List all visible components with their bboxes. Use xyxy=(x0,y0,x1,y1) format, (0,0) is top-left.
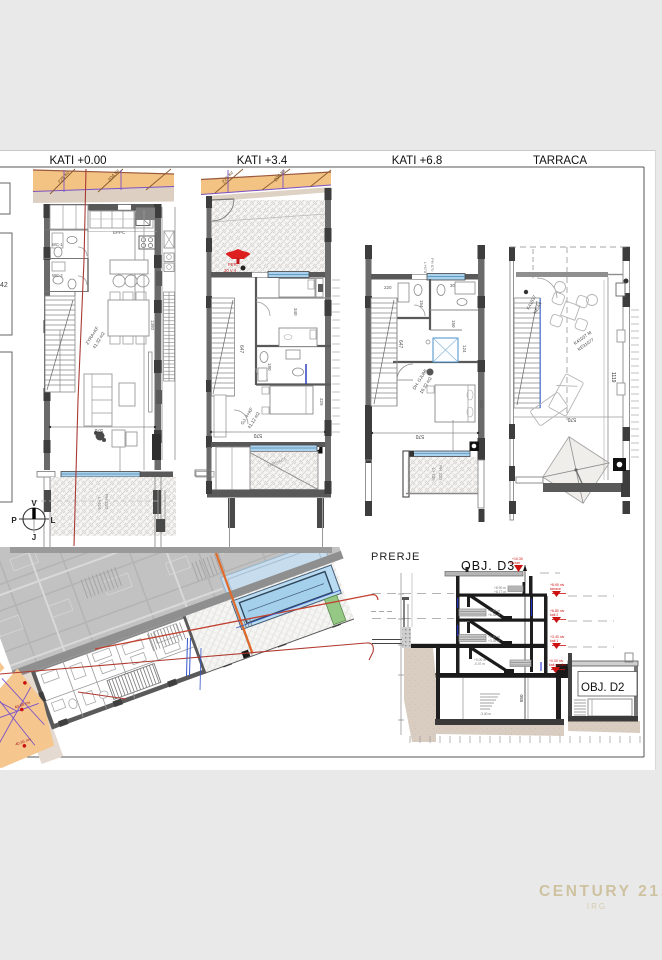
svg-text:1380: 1380 xyxy=(150,320,155,331)
svg-text:kati 1: kati 1 xyxy=(550,639,558,643)
svg-text:PER.: PER. xyxy=(228,262,238,267)
svg-text:470: 470 xyxy=(479,400,484,408)
svg-text:647: 647 xyxy=(238,345,244,354)
svg-text:CENTURY 21.: CENTURY 21. xyxy=(539,883,662,900)
svg-text:+8.77 m: +8.77 m xyxy=(494,590,506,594)
svg-text:PH 220: PH 220 xyxy=(438,465,443,481)
svg-text:220: 220 xyxy=(384,285,392,290)
svg-text:P: P xyxy=(11,516,17,525)
svg-text:KATI +0.00: KATI +0.00 xyxy=(49,155,106,167)
svg-text:154: 154 xyxy=(419,300,424,308)
svg-text:kati perdhe: kati perdhe xyxy=(549,663,566,667)
svg-text:L+678: L+678 xyxy=(423,262,428,274)
svg-text:V: V xyxy=(31,499,37,508)
svg-text:-0.07 m: -0.07 m xyxy=(474,662,485,666)
svg-text:150: 150 xyxy=(451,320,456,328)
svg-text:kati 2: kati 2 xyxy=(550,613,558,617)
svg-text:WC-1: WC-1 xyxy=(52,242,63,247)
svg-text:570: 570 xyxy=(253,432,262,438)
svg-text:OBJ. D3: OBJ. D3 xyxy=(461,559,515,573)
svg-text:647: 647 xyxy=(397,340,403,349)
svg-text:PH 670: PH 670 xyxy=(430,258,435,272)
svg-text:niv.tarr: niv.tarr xyxy=(510,561,521,565)
svg-text:570: 570 xyxy=(94,427,103,433)
svg-text:WC-2: WC-2 xyxy=(52,273,63,278)
svg-text:PH 220: PH 220 xyxy=(104,494,109,510)
svg-text:1119: 1119 xyxy=(610,372,616,383)
svg-text:340: 340 xyxy=(293,308,298,316)
svg-text:EPPC: EPPC xyxy=(113,230,126,235)
svg-text:L+416: L+416 xyxy=(97,497,102,510)
svg-text:570: 570 xyxy=(567,416,576,422)
svg-text:KATI +3.4: KATI +3.4 xyxy=(237,155,288,167)
svg-text:+6.38 m: +6.38 m xyxy=(488,613,500,617)
svg-text:42: 42 xyxy=(0,282,8,289)
svg-text:tarrace: tarrace xyxy=(550,587,561,591)
svg-text:OBJ. D2: OBJ. D2 xyxy=(581,682,624,694)
svg-text:329: 329 xyxy=(319,398,324,406)
svg-text:+3.38 m: +3.38 m xyxy=(488,639,500,643)
svg-text:-3.40 m: -3.40 m xyxy=(480,712,491,716)
svg-text:L: L xyxy=(51,516,56,525)
svg-text:124: 124 xyxy=(462,345,467,353)
svg-text:TARRACA: TARRACA xyxy=(533,155,587,167)
svg-text:570: 570 xyxy=(415,433,424,439)
svg-text:180: 180 xyxy=(267,363,272,371)
svg-text:J: J xyxy=(32,533,36,542)
svg-text:850: 850 xyxy=(519,694,524,702)
svg-text:KATI +6.8: KATI +6.8 xyxy=(392,155,443,167)
svg-text:IRG: IRG xyxy=(587,902,607,911)
svg-text:L+736: L+736 xyxy=(431,468,436,481)
svg-text:PRERJE: PRERJE xyxy=(371,551,420,563)
